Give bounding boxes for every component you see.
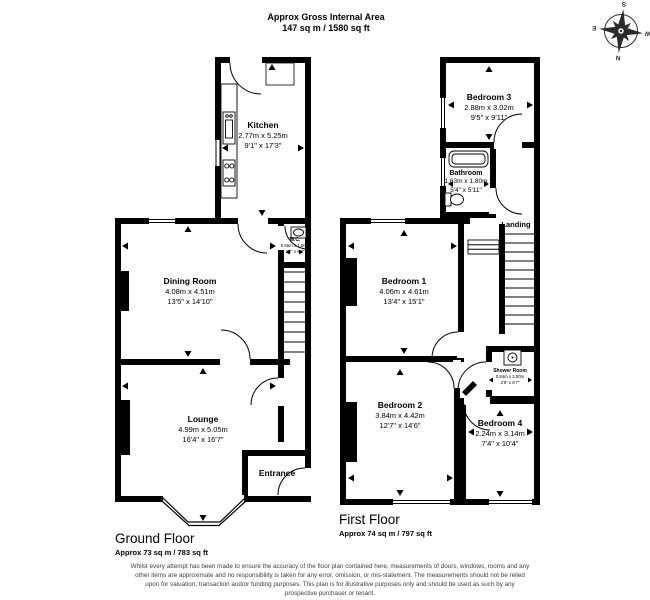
room-label-bedroom-1: Bedroom 1 4.06m x 4.61m 13'4" x 15'1": [379, 276, 429, 307]
floor-plan-drawing: N E S W: [0, 0, 650, 600]
room-label-kitchen: Kitchen 2.77m x 5.25m 9'1" x 17'3": [238, 120, 288, 151]
ground-floor-area: Approx 73 sq m / 783 sq ft: [115, 548, 208, 557]
room-label-shower-room: Shower Room 0.84m x 2.00m 2'9" x 6'7": [492, 368, 528, 385]
floorplan-page: N E S W Approx Gross Internal Area 147 s…: [0, 0, 650, 600]
room-label-bathroom: Bathroom 1.63m x 1.80m 5'4" x 5'11": [445, 169, 488, 195]
compass-n: N: [615, 54, 621, 61]
door-arc: [238, 224, 267, 253]
compass-s: S: [621, 0, 627, 7]
kitchen-fixtures: [221, 84, 237, 198]
compass-e: E: [591, 24, 597, 31]
kitchen-recess: [266, 63, 294, 85]
room-label-bedroom-4: Bedroom 4 2.24m x 3.14m 7'4" x 10'4": [475, 418, 525, 449]
compass-w: W: [644, 29, 650, 37]
chimney-breast: [121, 271, 129, 311]
gross-area-title: Approx Gross Internal Area: [267, 12, 384, 23]
stairs-icon: [284, 272, 305, 352]
chimney-breast: [346, 402, 357, 462]
bay-window: [162, 495, 246, 526]
room-label-wc: W.C. 0.66m x 1.60m 2'2" x 5'3": [281, 237, 309, 254]
gross-area-value: 147 sq m / 1580 sq ft: [267, 23, 384, 34]
sink-icon: [223, 112, 235, 144]
room-label-landing: Landing: [501, 220, 530, 230]
room-label-dining-room: Dining Room 4.08m x 4.51m 13'5" x 14'10": [164, 276, 217, 307]
stove-icon: [223, 160, 235, 186]
chimney-breast: [346, 258, 357, 306]
door-arc: [496, 188, 522, 214]
shower-icon: [504, 350, 521, 365]
compass-rose: N E S W: [588, 0, 650, 64]
page-title: Approx Gross Internal Area 147 sq m / 15…: [267, 12, 384, 34]
door-arc: [432, 332, 458, 358]
room-label-lounge: Lounge 4.99m x 5.05m 16'4" x 16'7": [178, 414, 228, 445]
first-floor-heading: First Floor: [339, 512, 400, 527]
disclaimer-text: Whilst every attempt has been made to en…: [130, 562, 530, 599]
door-arc: [221, 330, 250, 359]
chimney-breast: [121, 400, 130, 455]
bathtub-icon: [449, 151, 488, 167]
room-label-bedroom-3: Bedroom 3 2.88m x 3.02m 9'5" x 9'11": [464, 92, 514, 123]
room-label-entrance: Entrance: [259, 468, 295, 479]
room-label-bedroom-2: Bedroom 2 3.84m x 4.42m 12'7" x 14'6": [375, 400, 425, 431]
first-floor-area: Approx 74 sq m / 797 sq ft: [339, 529, 432, 538]
ground-floor-heading: Ground Floor: [115, 531, 195, 546]
door-arc: [428, 362, 454, 388]
door-arc: [251, 378, 278, 405]
